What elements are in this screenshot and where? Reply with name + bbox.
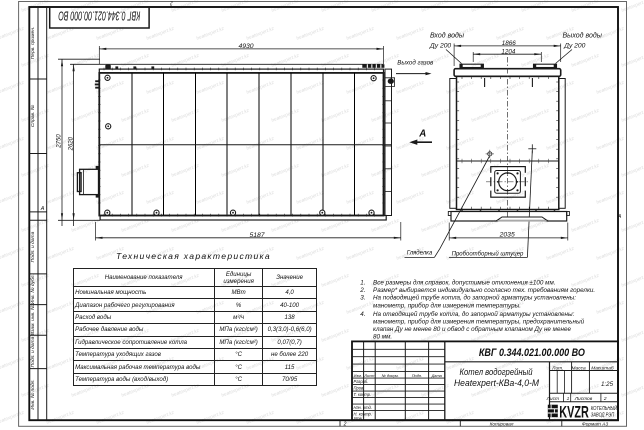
svg-text:Масштаб: Масштаб <box>591 366 614 372</box>
svg-text:КВГ 0.344.021.00.000 ВО: КВГ 0.344.021.00.000 ВО <box>479 347 585 359</box>
svg-text:КОТЕЛЬНЫЙ: КОТЕЛЬНЫЙ <box>591 404 618 412</box>
svg-text:1: 1 <box>567 396 570 402</box>
svg-text:Разраб.: Разраб. <box>354 379 369 384</box>
svg-text:Лит.: Лит. <box>551 366 563 372</box>
svg-text:Масса: Масса <box>572 366 587 372</box>
svg-text:1:25: 1:25 <box>601 381 614 388</box>
svg-text:Т. контр.: Т. контр. <box>354 392 372 397</box>
svg-text:Пров.: Пров. <box>354 386 365 391</box>
svg-text:Heatexpert-КВа-4,0-М: Heatexpert-КВа-4,0-М <box>454 378 539 389</box>
svg-text:2: 2 <box>603 396 607 402</box>
svg-text:№ докум.: № докум. <box>382 373 399 378</box>
svg-text:Изм.: Изм. <box>354 373 362 378</box>
svg-text:Подп.: Подп. <box>412 373 422 378</box>
svg-text:KVZR: KVZR <box>559 402 589 421</box>
svg-text:ЗАВОД РЭП: ЗАВОД РЭП <box>591 413 615 419</box>
svg-text:Листов: Листов <box>574 396 593 402</box>
svg-text:Лист: Лист <box>363 373 375 378</box>
svg-text:Котел водогрейный: Котел водогрейный <box>460 367 534 378</box>
svg-text:Утв.: Утв. <box>354 416 363 421</box>
svg-text:Нач. отд.: Нач. отд. <box>354 405 372 410</box>
svg-text:Лист: Лист <box>546 396 559 402</box>
svg-text:Дата: Дата <box>431 373 443 378</box>
